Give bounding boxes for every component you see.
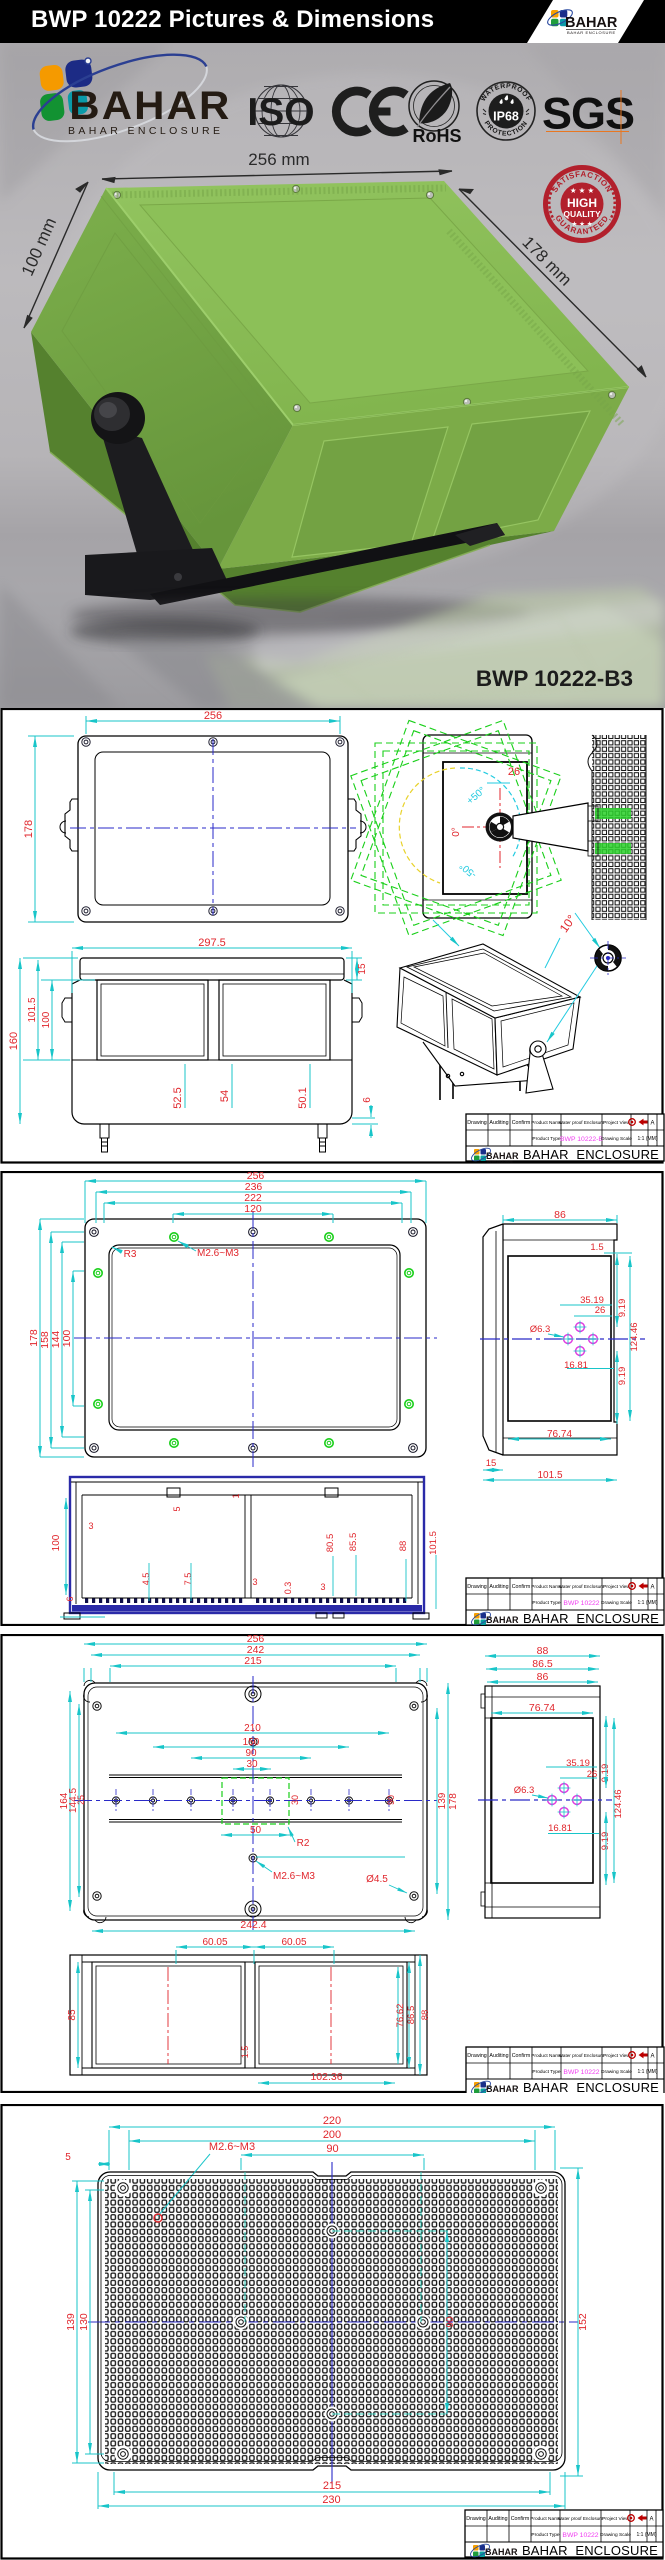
svg-text:Auditing: Auditing xyxy=(489,2053,508,2059)
svg-text:★ ★ ★: ★ ★ ★ xyxy=(571,220,592,228)
svg-text:BAHAR ENCLOSURE: BAHAR ENCLOSURE xyxy=(68,125,223,137)
svg-text:3: 3 xyxy=(88,1521,93,1531)
svg-text:101.5: 101.5 xyxy=(27,997,38,1022)
svg-text:1:1 (MM): 1:1 (MM) xyxy=(637,2532,657,2538)
svg-text:242.4: 242.4 xyxy=(240,1919,266,1931)
svg-text:BAHAR: BAHAR xyxy=(485,2547,518,2557)
svg-text:R3: R3 xyxy=(124,1249,137,1260)
svg-text:26: 26 xyxy=(508,766,520,778)
svg-text:Drawing: Drawing xyxy=(467,1584,486,1590)
svg-text:Confirm: Confirm xyxy=(512,1584,531,1590)
svg-text:86: 86 xyxy=(554,1209,566,1221)
svg-text:200: 200 xyxy=(323,2129,341,2141)
svg-text:BAHAR ENCLOSURE: BAHAR ENCLOSURE xyxy=(487,1160,513,1164)
svg-text:HIGH: HIGH xyxy=(567,196,597,210)
svg-text:Drawing Scale: Drawing Scale xyxy=(601,1600,632,1606)
svg-text:5: 5 xyxy=(172,1506,182,1511)
svg-text:230: 230 xyxy=(322,2494,340,2506)
svg-text:100: 100 xyxy=(41,1011,52,1028)
svg-text:120: 120 xyxy=(244,1203,262,1215)
svg-text:Confirm: Confirm xyxy=(511,2516,530,2522)
svg-text:101.5: 101.5 xyxy=(537,1470,562,1481)
svg-text:88: 88 xyxy=(420,2010,431,2021)
svg-text:139: 139 xyxy=(437,1792,448,1809)
svg-text:124.46: 124.46 xyxy=(613,1789,624,1818)
svg-text:R2: R2 xyxy=(297,1838,310,1849)
svg-text:76.74: 76.74 xyxy=(547,1429,572,1440)
svg-text:30: 30 xyxy=(290,1795,300,1805)
svg-text:256 mm: 256 mm xyxy=(248,150,309,169)
svg-text:15: 15 xyxy=(357,963,368,975)
svg-text:Water proof Enclosure: Water proof Enclosure xyxy=(559,1120,605,1125)
svg-text:BAHAR ENCLOSURE: BAHAR ENCLOSURE xyxy=(486,2556,512,2560)
svg-text:Drawing: Drawing xyxy=(467,2053,486,2059)
svg-text:BAHAR ENCLOSURE: BAHAR ENCLOSURE xyxy=(522,2543,658,2558)
svg-text:86: 86 xyxy=(537,1671,549,1683)
svg-text:6: 6 xyxy=(362,1097,373,1103)
svg-text:100: 100 xyxy=(51,1534,62,1551)
svg-text:Product Type: Product Type xyxy=(532,1136,561,1142)
svg-text:90: 90 xyxy=(445,2316,456,2328)
svg-text:220: 220 xyxy=(323,2115,341,2127)
svg-text:Project View: Project View xyxy=(602,2516,629,2522)
svg-text:54: 54 xyxy=(219,1090,231,1102)
svg-text:BWP 10222-B3: BWP 10222-B3 xyxy=(476,666,633,691)
svg-text:90: 90 xyxy=(386,1795,396,1805)
svg-text:0.3: 0.3 xyxy=(283,1582,293,1595)
svg-text:Water proof Enclosure: Water proof Enclosure xyxy=(558,2516,604,2521)
svg-text:7.5: 7.5 xyxy=(183,1573,193,1586)
svg-text:15: 15 xyxy=(486,1458,497,1469)
svg-text:178: 178 xyxy=(23,820,35,838)
svg-text:M2.6~M3: M2.6~M3 xyxy=(273,1871,315,1882)
svg-text:Product Type: Product Type xyxy=(532,1600,561,1606)
svg-text:60.05: 60.05 xyxy=(281,1937,306,1948)
svg-text:Water proof Enclosure: Water proof Enclosure xyxy=(559,1584,605,1589)
svg-text:130: 130 xyxy=(78,2313,90,2331)
svg-text:85.5: 85.5 xyxy=(348,1533,359,1552)
svg-text:16.81: 16.81 xyxy=(548,1823,572,1834)
svg-text:139: 139 xyxy=(65,2313,77,2331)
svg-text:3: 3 xyxy=(252,1577,257,1587)
svg-text:BAHAR: BAHAR xyxy=(486,2084,519,2093)
svg-text:Project View: Project View xyxy=(603,1584,630,1590)
svg-text:BAHAR ENCLOSURE: BAHAR ENCLOSURE xyxy=(523,1147,659,1162)
svg-text:BAHAR: BAHAR xyxy=(565,15,618,31)
svg-text:1:1 (MM): 1:1 (MM) xyxy=(638,2069,658,2075)
svg-text:90: 90 xyxy=(245,1748,257,1759)
svg-text:BWP 10222: BWP 10222 xyxy=(562,2532,598,2539)
svg-text:BWP 10222: BWP 10222 xyxy=(563,2069,599,2076)
svg-text:Ø6.3: Ø6.3 xyxy=(514,1785,535,1796)
svg-text:80.5: 80.5 xyxy=(325,1534,336,1553)
svg-text:Water proof Enclosure: Water proof Enclosure xyxy=(559,2053,605,2058)
svg-text:ISO: ISO xyxy=(247,91,314,134)
svg-text:152: 152 xyxy=(577,2313,589,2331)
svg-text:178: 178 xyxy=(448,1793,459,1810)
svg-text:1.5: 1.5 xyxy=(240,2046,250,2059)
svg-text:5: 5 xyxy=(65,2152,71,2163)
svg-text:A: A xyxy=(650,1585,654,1591)
svg-text:IP68: IP68 xyxy=(493,110,519,124)
svg-text:Drawing Scale: Drawing Scale xyxy=(600,2532,631,2538)
svg-text:1.5: 1.5 xyxy=(590,1242,603,1253)
svg-text:BWP 10222-B: BWP 10222-B xyxy=(560,1136,603,1143)
svg-text:88: 88 xyxy=(398,1541,409,1552)
svg-text:101.5: 101.5 xyxy=(428,1531,439,1555)
svg-text:Product Name: Product Name xyxy=(531,1120,562,1126)
svg-text:A: A xyxy=(650,1121,654,1127)
svg-text:160: 160 xyxy=(8,1032,20,1050)
svg-text:9.19: 9.19 xyxy=(617,1367,628,1386)
svg-text:Ø4.5: Ø4.5 xyxy=(366,1874,388,1885)
svg-text:30: 30 xyxy=(246,1759,258,1770)
svg-text:256: 256 xyxy=(204,710,222,722)
svg-text:50: 50 xyxy=(250,1825,262,1836)
svg-text:1:1 (MM): 1:1 (MM) xyxy=(638,1136,658,1142)
svg-text:BAHAR: BAHAR xyxy=(486,1615,519,1625)
svg-text:A: A xyxy=(649,2517,653,2523)
svg-text:Confirm: Confirm xyxy=(512,1120,531,1126)
svg-text:BAHAR: BAHAR xyxy=(69,83,231,128)
svg-text:100: 100 xyxy=(61,1330,73,1348)
svg-text:4.5: 4.5 xyxy=(141,1573,151,1586)
svg-text:6: 6 xyxy=(65,1596,75,1601)
svg-text:BAHAR ENCLOSURE: BAHAR ENCLOSURE xyxy=(523,1611,659,1626)
svg-text:210: 210 xyxy=(244,1723,261,1734)
svg-text:88: 88 xyxy=(537,1645,549,1657)
svg-text:Drawing: Drawing xyxy=(467,1120,486,1126)
svg-text:BAHAR ENCLOSURE: BAHAR ENCLOSURE xyxy=(523,2080,659,2093)
svg-text:BAHAR: BAHAR xyxy=(486,1151,519,1161)
svg-text:25: 25 xyxy=(76,1795,86,1805)
svg-text:215: 215 xyxy=(323,2480,341,2492)
svg-text:QUALITY: QUALITY xyxy=(563,209,601,219)
svg-text:Product Type: Product Type xyxy=(532,2069,561,2075)
svg-text:1:1 (MM): 1:1 (MM) xyxy=(638,1600,658,1606)
svg-text:Project View: Project View xyxy=(603,1120,630,1126)
svg-text:Product Name: Product Name xyxy=(531,1584,562,1590)
svg-text:M2.6~M3: M2.6~M3 xyxy=(197,1248,239,1259)
svg-text:50.1: 50.1 xyxy=(297,1087,309,1108)
svg-text:Product Name: Product Name xyxy=(530,2516,561,2522)
svg-text:26: 26 xyxy=(595,1305,606,1316)
svg-text:297.5: 297.5 xyxy=(198,937,226,949)
svg-text:SGS: SGS xyxy=(542,90,634,139)
svg-text:Project View: Project View xyxy=(603,2053,630,2059)
svg-text:86.5: 86.5 xyxy=(406,2006,417,2025)
svg-text:52.5: 52.5 xyxy=(172,1087,184,1108)
svg-text:102.36: 102.36 xyxy=(310,2071,342,2083)
svg-text:90: 90 xyxy=(326,2143,338,2155)
svg-text:Auditing: Auditing xyxy=(489,1120,508,1126)
svg-text:Drawing Scale: Drawing Scale xyxy=(601,1136,632,1142)
svg-text:76.74: 76.74 xyxy=(529,1702,555,1714)
svg-text:BWP 10222: BWP 10222 xyxy=(563,1600,599,1607)
svg-text:85: 85 xyxy=(67,2009,78,2021)
svg-text:60.05: 60.05 xyxy=(202,1937,227,1948)
svg-text:RoHS: RoHS xyxy=(413,126,462,146)
svg-text:Ø6.3: Ø6.3 xyxy=(530,1324,551,1335)
svg-text:76.62: 76.62 xyxy=(395,2004,406,2028)
svg-text:A: A xyxy=(650,2054,654,2060)
svg-text:1: 1 xyxy=(231,1493,241,1498)
svg-text:86.5: 86.5 xyxy=(532,1658,553,1670)
svg-text:Auditing: Auditing xyxy=(489,1584,508,1590)
svg-text:150: 150 xyxy=(243,1737,260,1748)
svg-text:Auditing: Auditing xyxy=(488,2516,507,2522)
svg-text:Product Name: Product Name xyxy=(531,2053,562,2059)
svg-text:BAHAR ENCLOSURE: BAHAR ENCLOSURE xyxy=(487,1624,513,1627)
svg-text:★ ★ ★: ★ ★ ★ xyxy=(570,186,595,195)
svg-text:124.46: 124.46 xyxy=(629,1322,640,1351)
svg-text:215: 215 xyxy=(244,1655,262,1667)
svg-text:Drawing: Drawing xyxy=(466,2516,485,2522)
svg-text:3: 3 xyxy=(320,1582,325,1592)
svg-text:Product Type: Product Type xyxy=(531,2532,560,2538)
svg-text:M2.6~M3: M2.6~M3 xyxy=(209,2141,255,2153)
svg-text:BAHAR ENCLOSURE: BAHAR ENCLOSURE xyxy=(487,2093,513,2094)
svg-text:0°: 0° xyxy=(451,827,462,837)
svg-text:BAHAR ENCLOSURE: BAHAR ENCLOSURE xyxy=(567,30,616,35)
svg-text:9.19: 9.19 xyxy=(617,1299,628,1318)
svg-text:Drawing Scale: Drawing Scale xyxy=(601,2069,632,2075)
svg-text:Confirm: Confirm xyxy=(512,2053,531,2059)
svg-text:16.81: 16.81 xyxy=(564,1360,588,1371)
